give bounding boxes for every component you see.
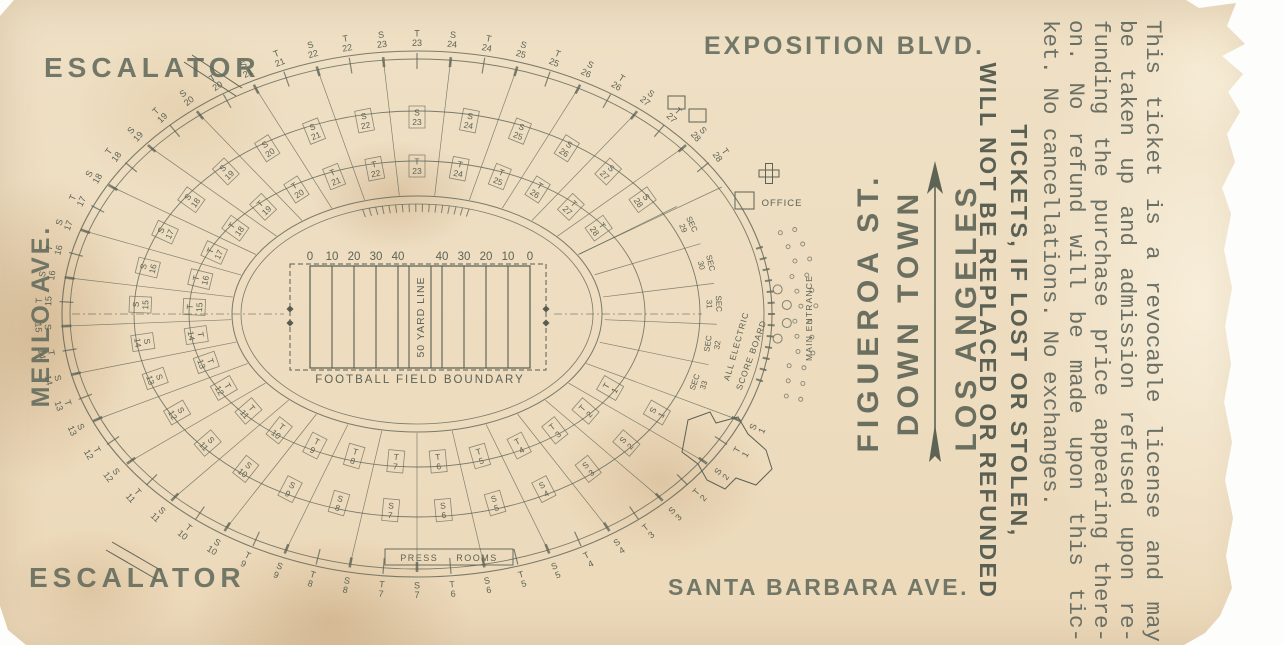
tree-icon	[793, 259, 797, 263]
tunnel-box-label: T18	[222, 215, 249, 241]
stadium-line	[363, 209, 366, 217]
outer-section-label: S1	[747, 422, 767, 436]
label-text: 8	[342, 585, 349, 596]
outer-tunnel-label: T14	[36, 347, 57, 360]
outer-tunnel-label: T19	[149, 104, 170, 125]
stadium-line	[603, 94, 611, 107]
ticket-booth	[689, 109, 706, 122]
label-text: 5	[478, 455, 486, 466]
label-text: 23	[376, 39, 387, 50]
tree-icon	[790, 275, 794, 279]
inner-sec-label: SEC29	[676, 215, 700, 238]
yard-number: 40	[392, 251, 405, 263]
scanned-ticket-page: { "colors": { "ink": "#5c6255", "paper":…	[0, 0, 1284, 645]
tunnel-box-label: T14	[184, 326, 208, 345]
tree-icon	[801, 242, 805, 246]
stadium-line	[482, 58, 485, 74]
tunnel-box-label: T9	[303, 432, 327, 459]
label-text: 22	[360, 120, 371, 132]
outer-tunnel-label: T15	[34, 295, 54, 306]
stadium-line	[678, 145, 686, 152]
section-box-label: S28	[629, 187, 656, 213]
tunnel-box-label: T15	[183, 298, 206, 315]
stadium-line	[125, 163, 136, 172]
stadium-line	[369, 208, 371, 216]
tree-icon	[786, 245, 790, 249]
label-text: 23	[412, 38, 422, 48]
stadium-seating-map: T1S1S1T1T2S2S2T2T3S3S3T3T4S4S4T4T5S5S5T5…	[12, 22, 874, 604]
outer-section-label: S25	[515, 39, 530, 61]
label-text: 8	[306, 578, 314, 589]
label-text: T	[414, 157, 419, 167]
outer-tunnel-label: T7	[378, 579, 386, 599]
label-text: 33	[698, 379, 710, 391]
label-text: 3	[553, 429, 563, 440]
scan-background: ESCALATOR EXPOSITION BLVD. MENLO AVE. ES…	[0, 0, 1284, 645]
label-text: 7	[414, 590, 419, 600]
label-text: 21	[273, 56, 286, 69]
label-text: T	[414, 29, 420, 39]
label-text: 2	[625, 441, 636, 451]
main-entrance-label: MAIN ENTRANCE	[804, 275, 814, 361]
outer-section-label: S19	[124, 123, 145, 143]
tunnel-box-label: T25	[488, 163, 511, 189]
label-text: 30	[696, 260, 707, 271]
stadium-line	[71, 372, 81, 374]
section-box-label: S17	[152, 220, 179, 244]
stadium-line	[349, 58, 352, 74]
tunnel-box-label: T7	[387, 450, 405, 473]
label-text: 4	[617, 545, 627, 556]
stadium-line	[558, 148, 683, 236]
yard-number: 20	[480, 251, 493, 263]
notice-line-1: TICKETS, IF LOST OR STOLEN,	[1003, 20, 1034, 642]
label-text: 4	[586, 558, 595, 569]
stadium-line	[197, 111, 203, 119]
label-text: 15	[33, 322, 43, 332]
down-town-label: DOWN TOWN	[892, 162, 926, 462]
stadium-line	[532, 114, 635, 220]
stadium-line	[435, 205, 436, 213]
stadium-line	[65, 320, 231, 326]
section-box-label: S22	[355, 108, 375, 133]
stadium-line	[376, 207, 378, 215]
football-field: 010203040403020100 50 YARD LINE FOOTBALL…	[286, 251, 549, 386]
stadium-line	[760, 258, 767, 260]
outer-section-label: S3	[666, 505, 684, 523]
stadium-line	[600, 342, 709, 364]
stadium-line	[466, 209, 469, 217]
stadium-line	[148, 145, 156, 152]
outer-section-label: S9	[271, 560, 284, 580]
stadium-line	[316, 549, 320, 564]
label-text: 24	[463, 120, 474, 132]
section-box-label: S14	[131, 333, 155, 352]
lost-ticket-notice: TICKETS, IF LOST OR STOLEN, WILL NOT BE …	[972, 20, 1034, 642]
tunnel-box-label: T26	[525, 176, 550, 203]
outer-tunnel-label: T17	[66, 191, 88, 208]
label-text: 3	[673, 512, 684, 523]
outer-section-label: S26	[579, 58, 597, 80]
outer-tunnel-label: T9	[239, 550, 253, 570]
tree-icon	[778, 231, 782, 235]
tree-icon	[782, 319, 791, 328]
outer-section-label: S13	[66, 420, 88, 437]
outer-tunnel-label: T8	[306, 569, 317, 589]
stadium-line	[756, 379, 763, 381]
tunnel-box-label: T22	[365, 156, 385, 181]
section-box-label: S27	[595, 158, 622, 185]
stadium-line	[586, 363, 737, 419]
label-text: 4	[517, 444, 526, 455]
label-text: 14	[43, 374, 55, 386]
label-text: 16	[147, 263, 159, 275]
label-text: 2	[698, 493, 709, 503]
outer-tunnel-label: T28	[711, 144, 733, 163]
stadium-line	[569, 383, 704, 461]
first-aid-cross-building	[759, 164, 779, 184]
stadium-line	[285, 544, 289, 553]
tunnel-box-label: T11	[235, 398, 262, 424]
outer-tunnel-label: T11	[124, 485, 145, 505]
outer-tunnel-label: T22	[340, 33, 354, 54]
tunnel-box-label: T23	[409, 155, 425, 177]
stadium-line	[441, 205, 442, 213]
outer-section-label: S12	[101, 465, 123, 484]
label-text: 6	[441, 510, 447, 520]
outer-section-label: S4	[612, 537, 628, 557]
label-text: 7	[387, 510, 393, 520]
tunnel-box-label: T4	[507, 432, 531, 459]
label-text: 5	[554, 569, 562, 580]
outer-section-label: S14	[43, 372, 64, 386]
section-box-label: S19	[212, 158, 239, 185]
tree-icon	[801, 381, 805, 385]
outer-section-label: S6	[483, 575, 493, 595]
label-text: 2	[720, 472, 731, 482]
label-text: 22	[307, 48, 319, 60]
stadium-line	[756, 247, 763, 249]
label-text: 24	[447, 39, 458, 50]
label-text: SEC	[714, 295, 724, 312]
label-text: 16	[52, 244, 64, 256]
tree-icon	[799, 304, 803, 308]
label-text: 3	[586, 467, 596, 478]
outer-section-label: S15	[33, 322, 53, 333]
outer-section-label: S21	[237, 58, 255, 80]
stadium-line	[402, 204, 403, 212]
tree-icon	[799, 397, 803, 401]
tunnel-box-label: T1	[597, 376, 624, 401]
outer-section-label: S5	[550, 560, 563, 580]
outer-tunnel-label: T5	[517, 569, 528, 589]
outer-tunnel-label: T4	[582, 549, 596, 569]
stadium-line	[396, 205, 397, 213]
outer-section-label: S18	[82, 167, 104, 185]
label-text: 23	[412, 117, 422, 127]
tree-icon	[793, 319, 797, 323]
label-text: 6	[485, 585, 492, 596]
tree-icon	[795, 334, 799, 338]
legal-text-line: This ticket is a revocable license and m…	[1139, 20, 1165, 642]
yard-number: 30	[458, 251, 471, 263]
stadium-line	[130, 383, 265, 461]
section-box-label: S25	[508, 118, 531, 144]
outer-tunnel-label: T21	[270, 47, 287, 69]
inner-sec-label: SEC33	[688, 373, 711, 395]
stadium-line	[383, 57, 384, 67]
arrow-fletching	[929, 424, 941, 462]
tree-icon	[814, 304, 818, 308]
label-text: 15	[140, 300, 150, 310]
inner-sec-label: SEC31	[704, 295, 723, 313]
tree-icon	[773, 334, 782, 343]
label-text: S	[414, 581, 420, 591]
tunnel-box-label: T12	[210, 376, 237, 401]
label-text: 32	[712, 339, 722, 350]
label-text: 13	[52, 400, 65, 413]
label-text: 16	[46, 270, 57, 281]
outer-tunnel-label: T23	[412, 29, 422, 49]
stadium-line	[767, 336, 774, 337]
stadium-line	[767, 291, 774, 292]
tunnel-box-label: T28	[585, 215, 612, 241]
section-box-label: S21	[303, 118, 326, 144]
stadium-line	[514, 549, 518, 564]
ticket-back: ESCALATOR EXPOSITION BLVD. MENLO AVE. ES…	[0, 0, 1252, 645]
outer-tunnel-label: T24	[481, 33, 495, 54]
label-text: 7	[392, 461, 398, 471]
tunnel-box-label: T5	[469, 443, 491, 469]
outer-section-label: S16	[37, 268, 58, 281]
tree-icon	[787, 364, 791, 368]
label-text: 9	[239, 558, 248, 569]
label-text: 15	[194, 302, 204, 312]
section-box-label: S26	[554, 135, 579, 162]
stadium-line	[546, 544, 550, 553]
label-text: 14	[36, 348, 47, 359]
outer-section-label: S17	[53, 216, 75, 232]
field-boundary-label: FOOTBALL FIELD BOUNDARY	[315, 374, 525, 386]
legal-text-line: be taken up and admission refused upon r…	[1113, 20, 1139, 642]
section-box-label: S20	[255, 135, 280, 162]
stadium-line	[631, 111, 637, 119]
stadium-line	[545, 400, 660, 498]
stadium-line	[545, 72, 550, 87]
direction-arrow-icon	[922, 158, 948, 488]
label-text: 9	[283, 488, 292, 499]
section-box-label: S23	[409, 106, 425, 128]
stadium-line	[514, 66, 517, 76]
outer-tunnel-label: T6	[449, 579, 457, 599]
stadium-line	[765, 280, 772, 281]
label-text: 8	[349, 455, 357, 466]
tree-icon	[784, 394, 788, 398]
stadium-line	[317, 66, 320, 76]
outer-tunnel-label: T13	[52, 396, 74, 412]
yard-number: 10	[326, 251, 339, 263]
legal-paragraph: This ticket is a revocable license and m…	[1036, 20, 1165, 642]
label-text: 6	[436, 461, 442, 471]
tree-icon	[793, 228, 797, 232]
stadium-line	[174, 400, 289, 498]
stadium-line	[382, 206, 384, 214]
section-box-label: S15	[129, 296, 152, 313]
fifty-yard-line-label: 50 YARD LINE	[415, 276, 427, 357]
stadium-line	[454, 207, 456, 215]
stadium-line	[284, 72, 289, 87]
stadium-line	[760, 369, 767, 371]
label-text: 14	[186, 330, 197, 341]
stadium-line	[429, 204, 430, 212]
tunnel-box-label: T21	[323, 163, 346, 189]
outer-section-label: S22	[304, 39, 319, 61]
yard-number: 10	[502, 251, 515, 263]
stadium-line	[65, 277, 75, 278]
label-text: 8	[334, 502, 342, 513]
tunnel-box-label: T8	[343, 443, 365, 469]
tree-icon	[786, 379, 790, 383]
stadium-line	[389, 205, 390, 213]
stadium-line	[384, 61, 400, 195]
stadium-line	[199, 114, 302, 220]
tree-icon	[782, 300, 791, 309]
stadium-line	[146, 474, 157, 484]
inner-sec-label: SEC30	[695, 254, 717, 275]
tunnel-box-label: T2	[572, 398, 599, 424]
yard-number: 0	[307, 251, 313, 263]
legal-text-line: ket. No cancellations. No exchanges.	[1036, 20, 1062, 642]
label-text: 5	[520, 578, 528, 589]
section-box-label: S5	[484, 490, 506, 516]
stadium-line	[576, 85, 581, 94]
tree-icon	[795, 289, 799, 293]
stadium-line	[630, 507, 639, 520]
section-box-label: S13	[142, 367, 168, 389]
outer-tunnel-label: T3	[640, 521, 657, 540]
stadium-line	[677, 474, 688, 484]
outer-tunnel-label: T2	[691, 486, 710, 503]
label-text: 25	[548, 56, 561, 69]
label-text: 17	[62, 219, 75, 232]
legal-text-line: funding the purchase price appearing the…	[1088, 20, 1114, 642]
stadium-line	[383, 558, 384, 574]
outer-tunnel-label: T25	[548, 47, 565, 69]
yard-number: 0	[527, 251, 533, 263]
stadium-line	[763, 358, 770, 359]
label-text: S	[414, 108, 420, 118]
outer-tunnel-label: T1	[731, 444, 751, 459]
outer-tunnel-label: T10	[176, 520, 196, 542]
stadium-line	[81, 230, 90, 233]
outer-section-label: S2	[712, 466, 731, 482]
section-box-label: S24	[459, 108, 479, 133]
tree-icon	[802, 366, 806, 370]
label-text: 5	[493, 502, 501, 513]
figueroa-st-label: FIGUEROA ST.	[852, 162, 888, 462]
label-text: 15	[43, 296, 53, 306]
tunnel-box-label: T24	[449, 156, 469, 181]
outer-tunnel-label: T16	[43, 242, 64, 256]
yard-number: 40	[436, 251, 449, 263]
stadium-line	[448, 206, 450, 214]
label-text: 9	[308, 444, 317, 455]
inner-sec-label: SEC32	[702, 335, 723, 354]
label-text: 31	[704, 300, 713, 310]
stadium-line	[603, 283, 714, 297]
outer-tunnel-label: T12	[82, 443, 104, 461]
label-text: 6	[450, 589, 456, 599]
label-text: 22	[341, 42, 353, 54]
press-rooms-label: PRESS ROOMS	[400, 553, 498, 563]
label-text: 24	[453, 168, 464, 180]
outer-tunnel-label: T18	[102, 144, 124, 163]
tunnel-box-label: T16	[188, 269, 213, 290]
outer-section-label: S23	[376, 29, 388, 49]
label-text: 9	[272, 569, 280, 580]
stadium-line	[763, 269, 770, 270]
section-box-label: S18	[178, 187, 205, 213]
stadium-line	[350, 558, 352, 568]
section-box-label: S6	[434, 498, 452, 521]
outer-section-label: S8	[341, 575, 351, 595]
outer-section-label: S20	[176, 86, 196, 108]
outer-section-label: S10	[205, 535, 224, 557]
stadium-line	[595, 244, 701, 275]
stadium-line	[460, 208, 462, 216]
legal-text-block: This ticket is a revocable license and m…	[1035, 20, 1165, 642]
notice-line-2: WILL NOT BE REPLACED OR REFUNDED	[972, 20, 1003, 642]
outer-section-label: S24	[447, 29, 459, 49]
label-text: 1	[609, 386, 620, 395]
label-text: SEC	[702, 335, 713, 353]
tree-icon	[773, 285, 782, 294]
label-text: 1	[756, 426, 767, 435]
section-box-label: S7	[382, 498, 400, 521]
yard-number: 30	[370, 251, 383, 263]
stadium-line	[697, 163, 708, 172]
press-rooms: PRESS ROOMS	[385, 549, 513, 565]
stadium-line	[654, 125, 664, 137]
stadium-line	[59, 302, 73, 303]
label-text: 23	[412, 166, 422, 176]
outer-section-label: S11	[149, 504, 169, 525]
stadium-line	[254, 85, 259, 94]
outer-tunnel-label: T26	[610, 71, 629, 93]
tunnel-box-label: T6	[429, 450, 447, 473]
label-text: 25	[515, 48, 527, 60]
section-box-label: S3	[575, 455, 601, 482]
stadium-line	[170, 125, 180, 137]
label-text: 24	[481, 42, 493, 54]
section-box-label: S8	[328, 490, 350, 516]
label-text: 1	[740, 450, 751, 459]
section-box-label: S10	[233, 455, 259, 482]
outer-section-label: S28	[689, 123, 710, 143]
stadium-line	[518, 414, 608, 528]
stadium-line	[765, 347, 772, 348]
office-label: OFFICE	[762, 198, 803, 209]
label-text: 3	[646, 529, 656, 540]
label-text: 16	[199, 274, 211, 286]
outer-section-label: S7	[414, 581, 420, 601]
stadium-line	[318, 70, 365, 200]
stadium-line	[151, 148, 276, 236]
tree-icon	[808, 257, 812, 261]
legal-text-line: on. No refund will be made upon this tic…	[1062, 20, 1088, 642]
yard-number: 20	[348, 251, 361, 263]
stadium-line	[196, 507, 205, 520]
